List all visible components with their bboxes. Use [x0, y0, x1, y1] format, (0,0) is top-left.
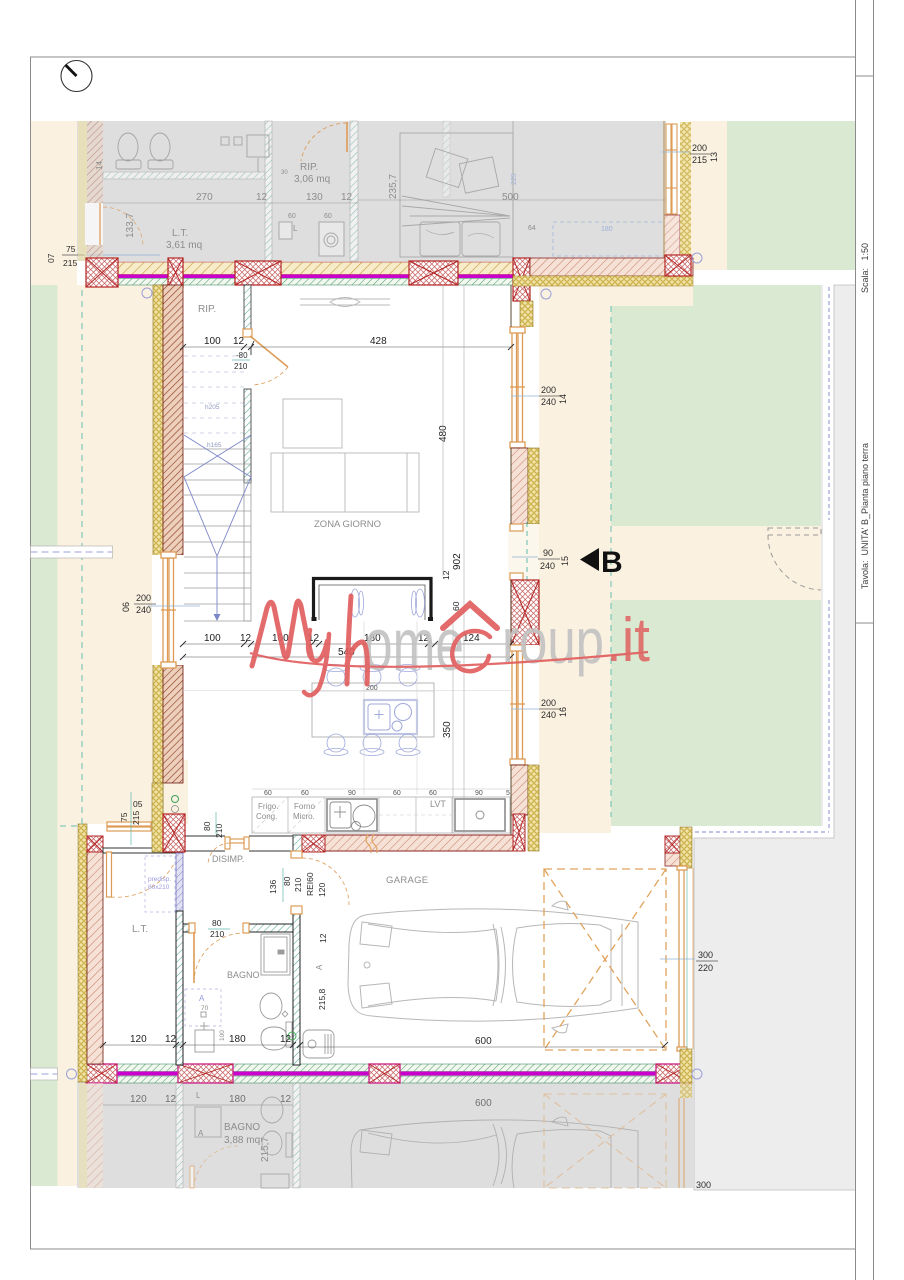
svg-text:12: 12 [165, 1034, 177, 1045]
svg-text:428: 428 [370, 336, 387, 347]
svg-text:Forno: Forno [294, 802, 315, 811]
svg-text:100: 100 [204, 336, 221, 347]
svg-text:60: 60 [301, 790, 309, 797]
svg-text:200: 200 [541, 698, 556, 708]
svg-text:215: 215 [692, 155, 707, 165]
svg-text:180: 180 [229, 1034, 246, 1045]
svg-text:300: 300 [698, 950, 713, 960]
svg-text:B: B [601, 546, 623, 579]
svg-text:500: 500 [502, 192, 519, 203]
svg-text:136: 136 [268, 880, 278, 894]
svg-text:L: L [196, 1091, 201, 1100]
svg-text:133,7: 133,7 [125, 213, 136, 238]
svg-text:100: 100 [219, 1030, 226, 1041]
svg-text:DISIMP.: DISIMP. [212, 854, 244, 864]
svg-text:75: 75 [66, 244, 76, 254]
svg-text:Frigo.: Frigo. [258, 802, 278, 811]
svg-text:220: 220 [698, 963, 713, 973]
svg-text:L: L [293, 224, 298, 233]
svg-text:64: 64 [528, 225, 536, 232]
svg-text:120: 120 [317, 883, 327, 897]
svg-text:GARAGE: GARAGE [386, 875, 428, 886]
svg-text:200: 200 [541, 385, 556, 395]
svg-text:130: 130 [306, 192, 323, 203]
svg-text:200: 200 [692, 143, 707, 153]
svg-text:80: 80 [202, 821, 212, 831]
svg-text:180: 180 [601, 226, 613, 233]
svg-text:12: 12 [233, 336, 245, 347]
svg-text:350: 350 [442, 721, 453, 738]
svg-text:BAGNO: BAGNO [227, 970, 260, 980]
svg-text:RIP.: RIP. [300, 162, 318, 173]
svg-text:200: 200 [136, 593, 151, 603]
svg-text:70: 70 [201, 1005, 209, 1012]
svg-text:75: 75 [119, 812, 129, 822]
svg-text:12: 12 [341, 192, 353, 203]
svg-text:60: 60 [324, 213, 332, 220]
svg-text:215: 215 [63, 258, 77, 268]
svg-text:60: 60 [288, 213, 296, 220]
svg-text:210: 210 [234, 362, 248, 371]
svg-text:210: 210 [210, 929, 224, 939]
svg-text:30: 30 [281, 170, 288, 176]
svg-text:12: 12 [280, 1034, 292, 1045]
svg-text:180: 180 [229, 1094, 246, 1105]
svg-text:100: 100 [204, 633, 221, 644]
svg-text:240: 240 [541, 710, 556, 720]
svg-text:-80: -80 [236, 351, 248, 360]
svg-text:.it: .it [606, 606, 650, 675]
svg-text:300: 300 [696, 1180, 711, 1190]
svg-text:60: 60 [264, 790, 272, 797]
svg-text:L.T.: L.T. [132, 924, 148, 935]
svg-text:12: 12 [318, 933, 328, 943]
svg-text:h205: h205 [205, 404, 220, 411]
svg-text:215,8: 215,8 [317, 988, 327, 1010]
svg-text:Tavola: UNITA' B_Pianta piano: Tavola: UNITA' B_Pianta piano terra [860, 443, 870, 589]
svg-text:REI60: REI60 [305, 872, 315, 896]
svg-text:120: 120 [130, 1034, 147, 1045]
svg-text:60: 60 [429, 790, 437, 797]
svg-text:240: 240 [136, 605, 151, 615]
svg-text:12: 12 [256, 192, 268, 203]
svg-text:Scala: 1:50: Scala: 1:50 [860, 243, 870, 293]
svg-text:600: 600 [475, 1036, 492, 1047]
svg-text:90: 90 [543, 548, 553, 558]
svg-text:14: 14 [558, 394, 568, 404]
svg-text:roup: roup [502, 605, 604, 677]
svg-text:16: 16 [558, 707, 568, 717]
svg-text:3,61 mq: 3,61 mq [166, 240, 202, 251]
svg-text:215: 215 [131, 811, 141, 825]
svg-text:h165: h165 [207, 442, 222, 449]
svg-text:235,7: 235,7 [388, 174, 399, 199]
svg-text:210: 210 [214, 824, 224, 838]
svg-text:BAGNO: BAGNO [224, 1122, 260, 1133]
svg-text:A: A [315, 964, 324, 970]
svg-text:RIP.: RIP. [198, 304, 216, 315]
svg-text:predisp.: predisp. [148, 876, 171, 883]
svg-text:06: 06 [121, 602, 131, 612]
svg-text:13: 13 [709, 152, 719, 162]
svg-text:Cong.: Cong. [256, 812, 277, 821]
svg-text:600: 600 [475, 1098, 492, 1109]
svg-text:07: 07 [46, 253, 56, 263]
svg-text:60: 60 [393, 790, 401, 797]
svg-text:270: 270 [196, 192, 213, 203]
svg-text:80: 80 [282, 876, 292, 886]
svg-text:80: 80 [212, 918, 222, 928]
svg-text:240: 240 [540, 561, 555, 571]
svg-text:480: 480 [438, 425, 449, 442]
svg-text:210: 210 [293, 878, 303, 892]
svg-text:ZONA GIORNO: ZONA GIORNO [314, 519, 381, 530]
svg-text:120: 120 [130, 1094, 147, 1105]
svg-text:902: 902 [452, 553, 463, 570]
svg-text:3,88 mq: 3,88 mq [224, 1135, 260, 1146]
svg-text:05: 05 [133, 799, 143, 809]
svg-text:A: A [199, 994, 205, 1003]
svg-text:240: 240 [541, 397, 556, 407]
svg-text:12: 12 [441, 570, 451, 580]
svg-text:215,7: 215,7 [260, 1137, 271, 1162]
svg-text:5: 5 [506, 790, 510, 797]
svg-text:LVT: LVT [430, 799, 446, 809]
svg-text:Micro.: Micro. [293, 812, 315, 821]
svg-text:80x210: 80x210 [148, 884, 170, 891]
svg-text:90: 90 [475, 790, 483, 797]
svg-text:15: 15 [560, 556, 570, 566]
svg-text:90: 90 [348, 790, 356, 797]
svg-text:3,06 mq: 3,06 mq [294, 174, 330, 185]
svg-text:L.T.: L.T. [172, 228, 188, 239]
svg-text:225: 225 [511, 173, 518, 185]
svg-text:14: 14 [95, 161, 104, 170]
svg-text:12: 12 [165, 1094, 177, 1105]
svg-text:ome: ome [364, 603, 464, 686]
